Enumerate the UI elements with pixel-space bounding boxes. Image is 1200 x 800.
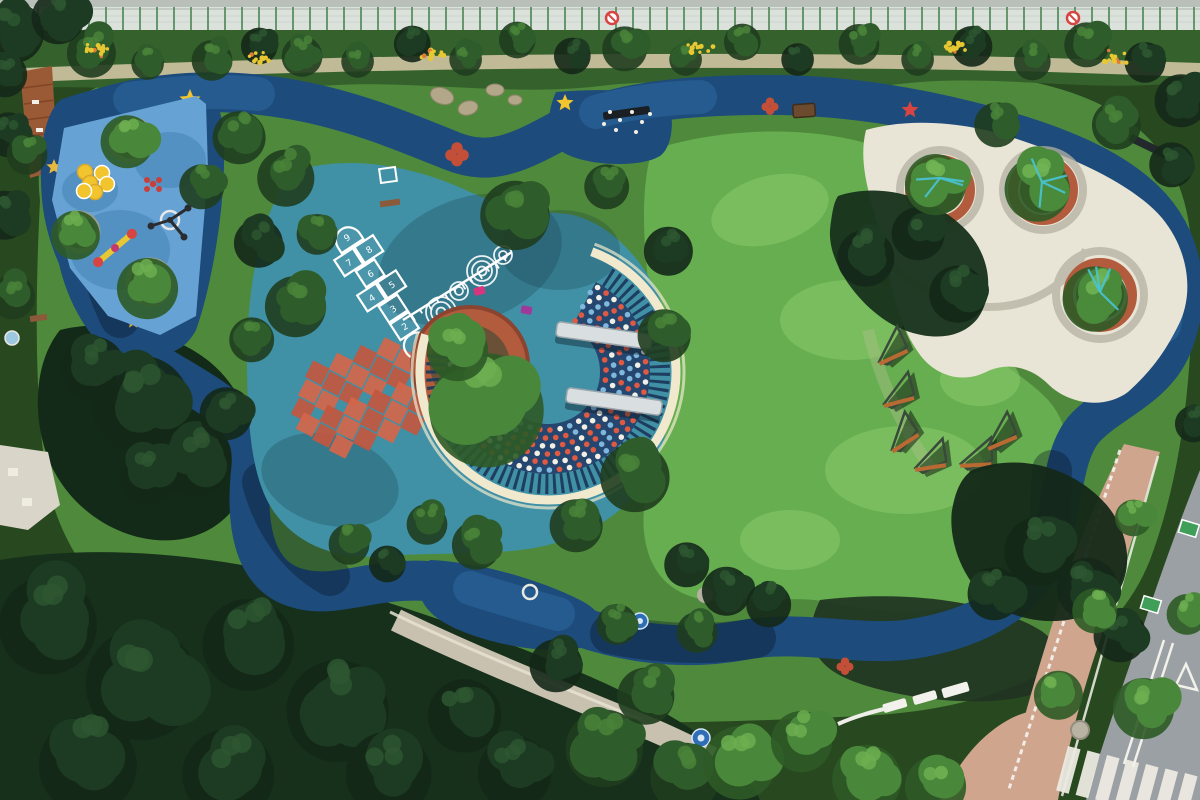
canopy-blob xyxy=(243,330,262,349)
canopy-highlight xyxy=(1112,110,1123,121)
confetti-dot xyxy=(634,383,640,389)
flower-dot xyxy=(692,43,695,46)
confetti-dot xyxy=(522,456,528,462)
canopy-highlight xyxy=(204,43,213,52)
confetti-dot xyxy=(620,420,626,426)
confetti-dot xyxy=(630,320,636,326)
canopy-highlight xyxy=(1,198,12,209)
canopy-blob xyxy=(59,227,78,246)
confetti-dot xyxy=(603,290,609,296)
confetti-dot xyxy=(557,426,563,432)
confetti-dot xyxy=(618,316,624,322)
canopy-highlight xyxy=(573,39,581,47)
flower-dot xyxy=(102,50,105,53)
canopy-highlight xyxy=(625,455,640,470)
canopy-highlight xyxy=(990,102,1000,112)
confetti-dot xyxy=(641,389,647,395)
canopy-highlight xyxy=(259,29,267,37)
canopy-blob xyxy=(999,116,1016,133)
canopy-highlight xyxy=(509,193,524,208)
confetti-dot xyxy=(595,304,601,310)
tree-canopy xyxy=(7,134,48,175)
confetti-dot xyxy=(611,442,617,448)
confetti-dot xyxy=(567,423,573,429)
confetti-dot xyxy=(547,467,553,473)
confetti-dot xyxy=(625,426,631,432)
canopy-highlight xyxy=(228,120,239,131)
canopy-highlight xyxy=(140,259,153,272)
flower-dot xyxy=(432,49,436,53)
canopy-highlight xyxy=(584,714,601,731)
tree-canopy xyxy=(781,43,814,76)
confetti-dot xyxy=(586,458,592,464)
confetti-dot xyxy=(557,467,563,473)
tree-canopy xyxy=(51,210,100,259)
canopy-blob xyxy=(1138,47,1165,74)
canopy-highlight xyxy=(429,503,438,512)
canopy-highlight xyxy=(613,611,622,620)
confetti-dot xyxy=(532,458,538,464)
canopy-highlight xyxy=(123,370,144,391)
picnic-table xyxy=(22,498,32,506)
canopy-highlight xyxy=(6,58,16,68)
confetti-dot xyxy=(540,443,546,449)
confetti-dot xyxy=(577,462,583,468)
tree-canopy xyxy=(664,542,709,587)
canopy-highlight xyxy=(1028,517,1043,532)
confetti-dot xyxy=(619,434,625,440)
canopy-highlight xyxy=(85,344,99,358)
canopy-highlight xyxy=(681,48,688,55)
canopy-blob xyxy=(763,592,780,609)
canopy-blob xyxy=(1033,537,1064,568)
canopy-highlight xyxy=(240,113,251,124)
flower-dot xyxy=(86,43,89,46)
canopy-highlight xyxy=(284,148,296,160)
confetti-dot xyxy=(603,367,609,373)
canopy-highlight xyxy=(128,119,139,130)
flower-dot xyxy=(1123,52,1127,56)
confetti-dot xyxy=(626,386,632,392)
confetti-dot xyxy=(609,352,615,358)
canopy-highlight xyxy=(228,609,248,629)
canopy-highlight xyxy=(788,47,795,54)
canopy-highlight xyxy=(457,49,464,56)
canopy-highlight xyxy=(1135,500,1143,508)
canopy-blob xyxy=(77,737,115,775)
canopy-highlight xyxy=(913,44,920,51)
confetti-dot xyxy=(572,318,578,324)
confetti-dot xyxy=(536,467,542,473)
confetti-dot xyxy=(596,316,602,322)
confetti-dot xyxy=(635,373,641,379)
canopy-highlight xyxy=(510,26,518,34)
canopy-highlight xyxy=(991,569,1002,580)
tree-canopy xyxy=(584,164,629,209)
canopy-highlight xyxy=(1041,522,1056,537)
confetti-dot xyxy=(602,416,608,422)
confetti-dot xyxy=(595,454,601,460)
confetti-dot xyxy=(607,435,613,441)
canopy-highlight xyxy=(280,159,292,171)
confetti-dot xyxy=(627,376,633,382)
deck-furniture xyxy=(32,100,39,104)
canopy-highlight xyxy=(342,527,351,536)
flower-dot xyxy=(97,46,101,50)
canopy-blob xyxy=(854,41,870,57)
confetti-dot xyxy=(643,369,649,375)
canopy-highlight xyxy=(852,235,864,247)
canopy-highlight xyxy=(379,550,387,558)
canopy-highlight xyxy=(505,744,521,760)
confetti-dot xyxy=(602,357,608,363)
flower-dot xyxy=(259,59,263,63)
flower-dot xyxy=(106,47,110,51)
tree-canopy xyxy=(644,227,693,276)
canopy-highlight xyxy=(600,167,610,177)
canopy-highlight xyxy=(667,229,678,240)
painted-branch xyxy=(916,178,940,180)
flower-dot xyxy=(248,55,251,58)
confetti-dot xyxy=(604,301,610,307)
flower-dot xyxy=(1120,61,1123,64)
tree-canopy xyxy=(117,258,178,319)
canopy-highlight xyxy=(9,120,19,130)
confetti-dot xyxy=(590,418,596,424)
confetti-dot xyxy=(611,373,617,379)
canopy-highlight xyxy=(966,36,975,45)
canopy-highlight xyxy=(251,230,262,241)
canopy-highlight xyxy=(1128,506,1136,514)
confetti-dot xyxy=(643,359,649,365)
fence-sign-icon xyxy=(606,12,618,24)
confetti-dot xyxy=(516,463,522,469)
confetti-dot xyxy=(563,433,569,439)
flower-dot xyxy=(428,55,434,61)
canopy-highlight xyxy=(932,163,945,176)
confetti-dot xyxy=(572,455,578,461)
confetti-dot xyxy=(575,446,581,452)
confetti-dot xyxy=(627,366,633,372)
confetti-dot xyxy=(601,430,607,436)
flower-dot xyxy=(963,48,967,52)
confetti-dot xyxy=(603,311,609,317)
flower-dot xyxy=(262,51,265,54)
confetti-dot xyxy=(619,360,625,366)
confetti-dot xyxy=(562,458,568,464)
water-feature xyxy=(5,331,19,345)
confetti-dot xyxy=(618,304,624,310)
canopy-highlight xyxy=(1044,676,1055,687)
canopy-blob xyxy=(794,57,808,71)
flower-dot xyxy=(698,51,701,54)
tree-canopy xyxy=(1034,671,1083,720)
aerial-park-photo: Top-down drone photograph of a community… xyxy=(0,0,1200,800)
canopy-highlight xyxy=(211,748,231,768)
confetti-dot xyxy=(611,308,617,314)
flower-dot xyxy=(956,41,961,46)
canopy-highlight xyxy=(609,166,619,176)
flower-dot xyxy=(102,44,105,47)
canopy-highlight xyxy=(725,574,736,585)
canopy-highlight xyxy=(518,22,526,30)
confetti-dot xyxy=(611,297,617,303)
confetti-dot xyxy=(526,465,532,471)
flower-dot xyxy=(699,45,703,49)
canopy-highlight xyxy=(1185,593,1194,602)
canopy-highlight xyxy=(413,28,421,36)
confetti-dot xyxy=(599,441,605,447)
tree-canopy xyxy=(724,24,761,61)
canopy-blob xyxy=(1083,604,1106,627)
canopy-blob xyxy=(694,620,710,636)
confetti-dot xyxy=(591,447,597,453)
confetti-dot xyxy=(588,290,594,296)
canopy-highlight xyxy=(70,210,81,221)
flower-dot xyxy=(85,49,89,53)
confetti-dot xyxy=(555,451,561,457)
confetti-dot xyxy=(545,451,551,457)
tree-canopy xyxy=(229,317,274,362)
canopy-highlight xyxy=(794,725,807,738)
canopy-highlight xyxy=(858,27,867,36)
canopy-highlight xyxy=(1096,590,1106,600)
canopy-blob xyxy=(386,554,405,573)
manhole xyxy=(1071,721,1089,739)
confetti-dot xyxy=(550,443,556,449)
canopy-highlight xyxy=(911,219,922,230)
park-scene: 123456789 xyxy=(0,0,1200,800)
confetti-dot xyxy=(610,319,616,325)
canopy-highlight xyxy=(680,750,695,765)
confetti-dot xyxy=(579,435,585,441)
canopy-highlight xyxy=(327,659,349,681)
confetti-dot xyxy=(553,435,559,441)
canopy-highlight xyxy=(648,666,660,678)
canopy-highlight xyxy=(855,751,870,766)
canopy-highlight xyxy=(694,613,703,622)
confetti-dot xyxy=(603,377,609,383)
canopy-highlight xyxy=(1136,691,1149,704)
canopy-highlight xyxy=(54,0,65,11)
flower-dot xyxy=(441,53,446,58)
confetti-dot xyxy=(576,418,582,424)
canopy-highlight xyxy=(453,331,466,344)
yellow-disc xyxy=(77,184,92,199)
canopy-highlight xyxy=(1037,158,1051,172)
confetti-dot xyxy=(534,451,540,457)
flower-dot xyxy=(1112,59,1117,64)
canopy-highlight xyxy=(935,766,948,779)
canopy-highlight xyxy=(287,282,300,295)
canopy-highlight xyxy=(385,747,403,765)
picnic-table xyxy=(8,468,18,476)
confetti-dot xyxy=(580,304,586,310)
flower-dot xyxy=(1112,54,1117,59)
canopy-highlight xyxy=(304,35,313,44)
confetti-dot xyxy=(589,309,595,315)
canopy-highlight xyxy=(1192,410,1200,418)
flower-dot xyxy=(686,43,689,46)
confetti-dot xyxy=(570,439,576,445)
canopy-highlight xyxy=(1077,27,1087,37)
canopy-highlight xyxy=(1117,615,1128,626)
confetti-dot xyxy=(584,412,590,418)
confetti-dot xyxy=(587,299,593,305)
confetti-dot xyxy=(623,324,629,330)
canopy-highlight xyxy=(7,13,20,26)
flower-dot xyxy=(706,49,710,53)
canopy-highlight xyxy=(315,218,324,227)
canopy-highlight xyxy=(245,321,255,331)
canopy-highlight xyxy=(365,748,383,766)
canopy-highlight xyxy=(81,714,102,735)
canopy-highlight xyxy=(245,603,265,623)
confetti-dot xyxy=(604,448,610,454)
canopy-highlight xyxy=(569,506,580,517)
flower-dot xyxy=(689,49,694,54)
confetti-dot xyxy=(618,380,624,386)
deck-furniture xyxy=(36,128,43,132)
canopy-highlight xyxy=(468,528,479,539)
confetti-dot xyxy=(573,429,579,435)
confetti-dot xyxy=(643,379,649,385)
canopy-highlight xyxy=(616,603,625,612)
confetti-dot xyxy=(582,424,588,430)
canopy-highlight xyxy=(144,451,156,463)
canopy-highlight xyxy=(349,51,356,58)
confetti-dot xyxy=(547,427,553,433)
flower-dot xyxy=(1107,49,1111,53)
canopy-highlight xyxy=(219,398,230,409)
confetti-dot xyxy=(626,356,632,362)
canopy-blob xyxy=(514,36,531,53)
trash-bins xyxy=(793,103,816,118)
flower-dot xyxy=(254,51,258,55)
canopy-highlight xyxy=(849,31,858,40)
canopy-highlight xyxy=(765,585,775,595)
flower-dot xyxy=(1124,60,1128,64)
canopy-highlight xyxy=(620,29,630,39)
canopy-highlight xyxy=(736,27,744,35)
confetti-dot xyxy=(579,312,585,318)
confetti-dot xyxy=(582,452,588,458)
confetti-dot xyxy=(614,428,620,434)
flower-dot xyxy=(954,46,959,51)
canopy-highlight xyxy=(1166,84,1177,95)
canopy-highlight xyxy=(260,222,271,233)
confetti-dot xyxy=(608,422,614,428)
canopy-blob xyxy=(464,42,483,61)
confetti-dot xyxy=(635,362,641,368)
canopy-highlight xyxy=(33,585,54,606)
flower-dot xyxy=(711,44,716,49)
confetti-dot xyxy=(584,442,590,448)
canopy-highlight xyxy=(125,647,149,671)
canopy-highlight xyxy=(23,138,32,147)
confetti-dot xyxy=(611,362,617,368)
confetti-dot xyxy=(587,318,593,324)
canopy-highlight xyxy=(1169,150,1179,160)
tree-canopy xyxy=(369,546,406,583)
canopy-highlight xyxy=(195,165,205,175)
canopy-highlight xyxy=(957,265,969,277)
flower-dot xyxy=(254,57,258,61)
canopy-highlight xyxy=(721,735,737,751)
confetti-dot xyxy=(610,383,616,389)
canopy-highlight xyxy=(142,49,149,56)
tree-canopy xyxy=(638,309,691,362)
canopy-blob xyxy=(321,223,337,239)
canopy-highlight xyxy=(416,509,425,518)
canopy-highlight xyxy=(1074,565,1087,578)
fence-sign-icon xyxy=(1067,12,1079,24)
flower-dot xyxy=(944,44,949,49)
canopy-highlight xyxy=(442,691,458,707)
tree-canopy xyxy=(213,111,266,164)
confetti-dot xyxy=(560,442,566,448)
street-beyond-fence xyxy=(0,0,1200,7)
confetti-dot xyxy=(567,465,573,471)
confetti-dot xyxy=(593,436,599,442)
confetti-dot xyxy=(595,424,601,430)
flower-dot xyxy=(422,53,427,58)
canopy-highlight xyxy=(1029,48,1037,56)
tree-canopy xyxy=(297,214,338,255)
confetti-dot xyxy=(587,430,593,436)
tree-canopy xyxy=(1072,588,1117,633)
confetti-dot xyxy=(565,449,571,455)
confetti-dot xyxy=(596,295,602,301)
flower-dot xyxy=(1104,60,1109,65)
tree-canopy xyxy=(554,38,591,75)
flower-dot xyxy=(263,55,267,59)
flower-dot xyxy=(1117,61,1120,64)
canopy-highlight xyxy=(1180,600,1189,609)
canopy-highlight xyxy=(797,710,810,723)
tree-canopy xyxy=(1063,266,1128,331)
canopy-highlight xyxy=(7,281,17,291)
confetti-dot xyxy=(619,370,625,376)
canopy-blob xyxy=(589,733,638,782)
canopy-highlight xyxy=(1144,49,1153,58)
flower-dot xyxy=(89,47,94,52)
confetti-dot xyxy=(552,459,558,465)
confetti-dot xyxy=(542,459,548,465)
canopy-highlight xyxy=(194,433,210,449)
canopy-highlight xyxy=(662,313,673,324)
confetti-dot xyxy=(595,285,601,291)
confetti-dot xyxy=(625,312,631,318)
canopy-highlight xyxy=(553,638,564,649)
confetti-dot xyxy=(543,435,549,441)
canopy-highlight xyxy=(680,548,690,558)
tree-canopy xyxy=(480,181,550,250)
